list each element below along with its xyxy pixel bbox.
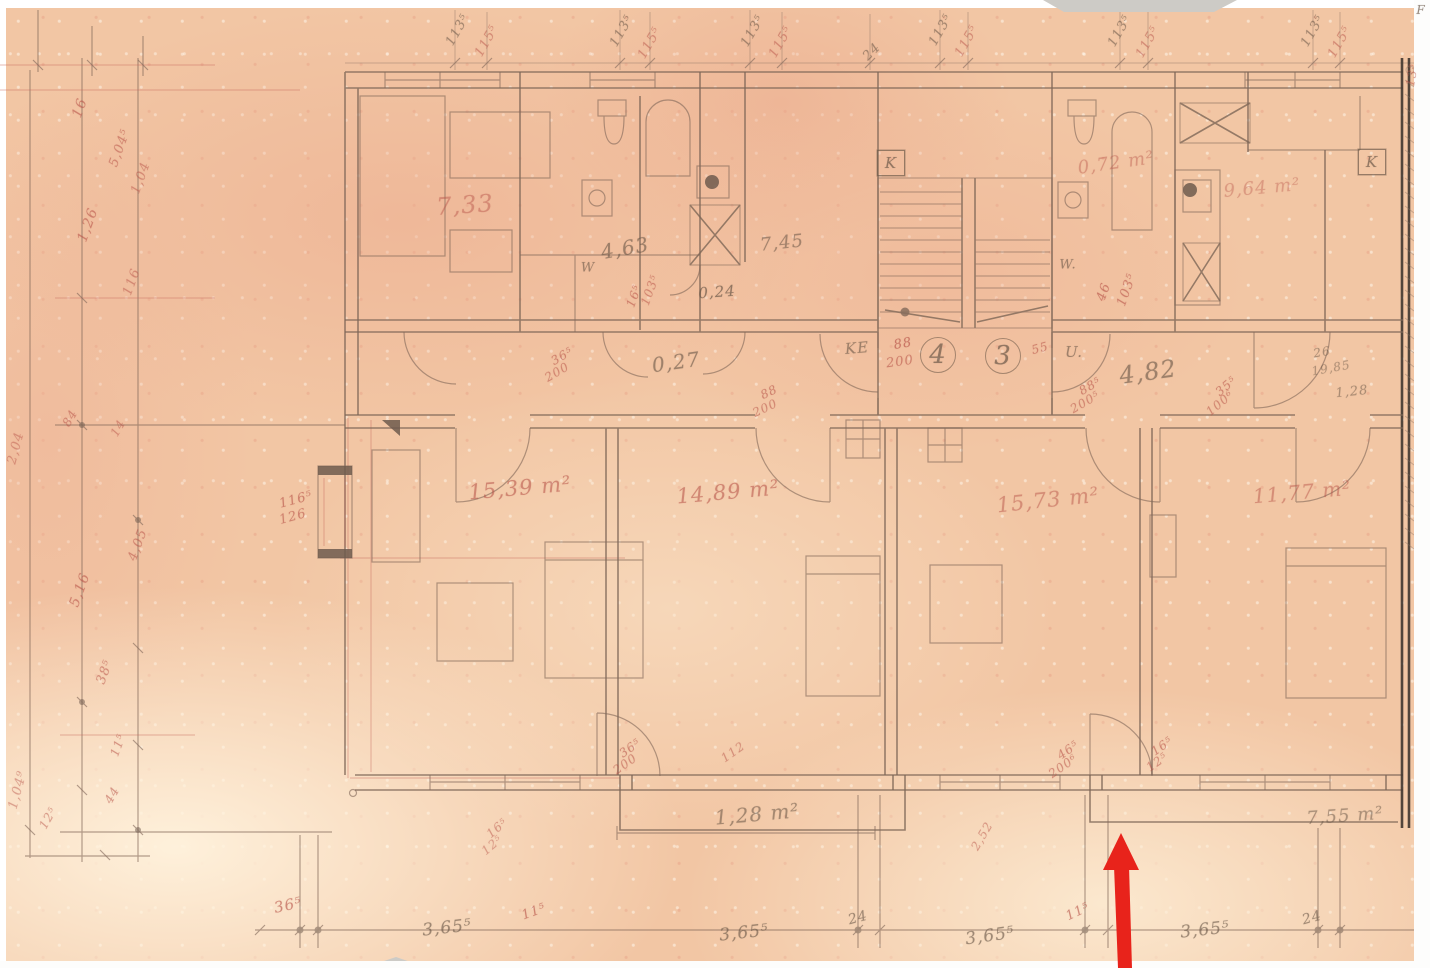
door-arcs bbox=[404, 265, 1370, 776]
shaft-x-boxes bbox=[690, 103, 1386, 301]
windows-bottom bbox=[430, 775, 1330, 790]
windows-top bbox=[385, 72, 1340, 88]
left-wall-window bbox=[318, 466, 352, 558]
right-margin bbox=[1414, 0, 1430, 968]
corner-mark bbox=[350, 790, 357, 797]
top-dimension-line bbox=[345, 10, 1425, 70]
stove-burner bbox=[705, 175, 719, 189]
loggia-dim-line bbox=[617, 826, 875, 840]
left-dimension-red-lines bbox=[0, 65, 625, 778]
scanned-floorplan-page: 7,330,72 m²9,64 m²4,637,450,240,2715,39 … bbox=[0, 0, 1430, 968]
outer-walls bbox=[345, 72, 1403, 790]
dimension-ticks-left bbox=[25, 60, 148, 860]
bathroom-fixtures bbox=[582, 100, 1220, 305]
scan-artifact-top bbox=[1043, 0, 1237, 12]
floor-plan-drawing bbox=[0, 0, 1430, 968]
bottom-dimension-line bbox=[255, 795, 1430, 948]
furniture bbox=[360, 96, 1386, 698]
loggias bbox=[620, 775, 1398, 830]
stove-burner bbox=[1183, 183, 1197, 197]
bottom-margin bbox=[0, 961, 1430, 968]
right-section-wall bbox=[1402, 58, 1409, 828]
corridor-boxes bbox=[846, 420, 962, 462]
staircase bbox=[878, 178, 1052, 328]
left-dimension-chain bbox=[25, 10, 345, 862]
